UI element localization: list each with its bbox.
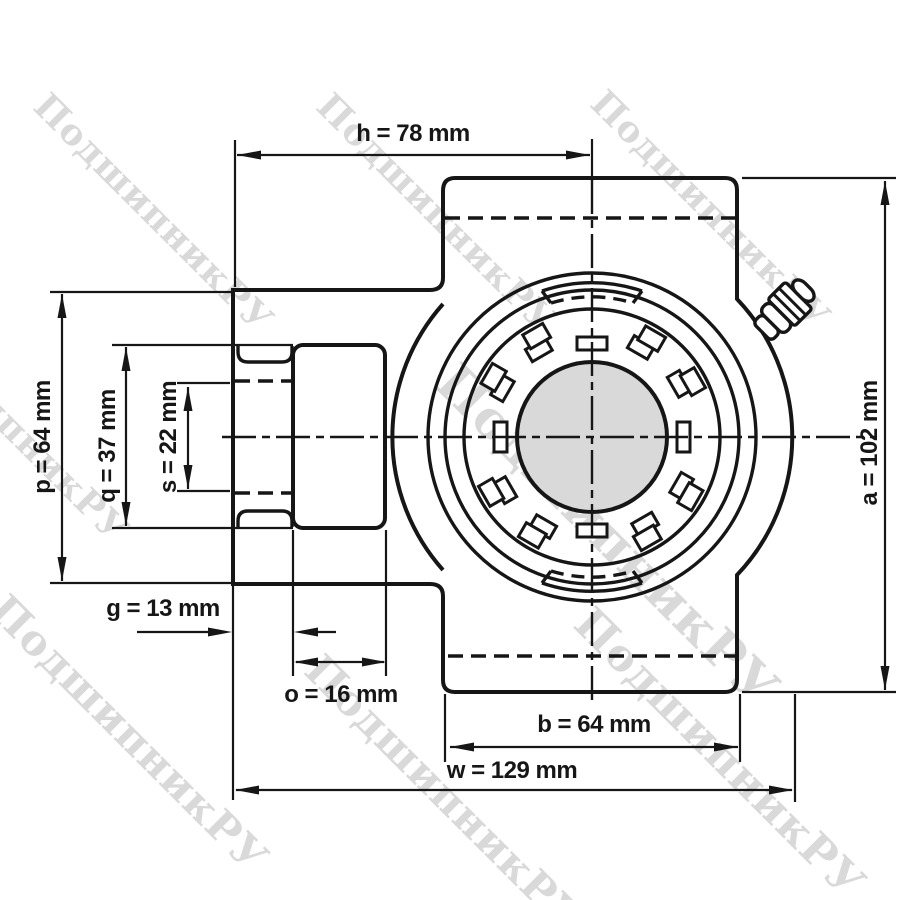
dimension-q-label: q = 37 mm <box>94 389 121 503</box>
slot-pocket-top <box>238 346 292 362</box>
technical-drawing: h = 78 mm a = 102 mm p = 64 mm <box>0 0 900 900</box>
body-outline-path <box>233 178 792 692</box>
dimension-p: p = 64 mm <box>29 292 233 583</box>
dimension-s-label: s = 22 mm <box>155 381 182 493</box>
slot-pocket-bottom <box>238 511 292 527</box>
dimension-h-label: h = 78 mm <box>356 120 470 147</box>
dimension-o: o = 16 mm <box>284 530 398 708</box>
dimension-g: g = 13 mm <box>106 530 336 800</box>
dimension-g-label: g = 13 mm <box>106 595 220 622</box>
dimension-s: s = 22 mm <box>155 381 230 493</box>
dimension-o-label: o = 16 mm <box>284 681 398 708</box>
dimension-a-label: a = 102 mm <box>856 380 883 505</box>
dimension-b-label: b = 64 mm <box>537 711 651 738</box>
dimension-h: h = 78 mm <box>235 120 592 287</box>
dimension-w-label: w = 129 mm <box>446 757 577 784</box>
dimension-b: b = 64 mm <box>445 694 740 762</box>
housing-body-outline <box>233 178 792 692</box>
dimension-p-label: p = 64 mm <box>29 380 56 494</box>
dimension-a: a = 102 mm <box>742 178 896 692</box>
drawing-canvas: ПодшипникРУ ПодшипникРУ ПодшипникРУ Подш… <box>0 0 900 900</box>
grease-fitting <box>749 273 822 346</box>
